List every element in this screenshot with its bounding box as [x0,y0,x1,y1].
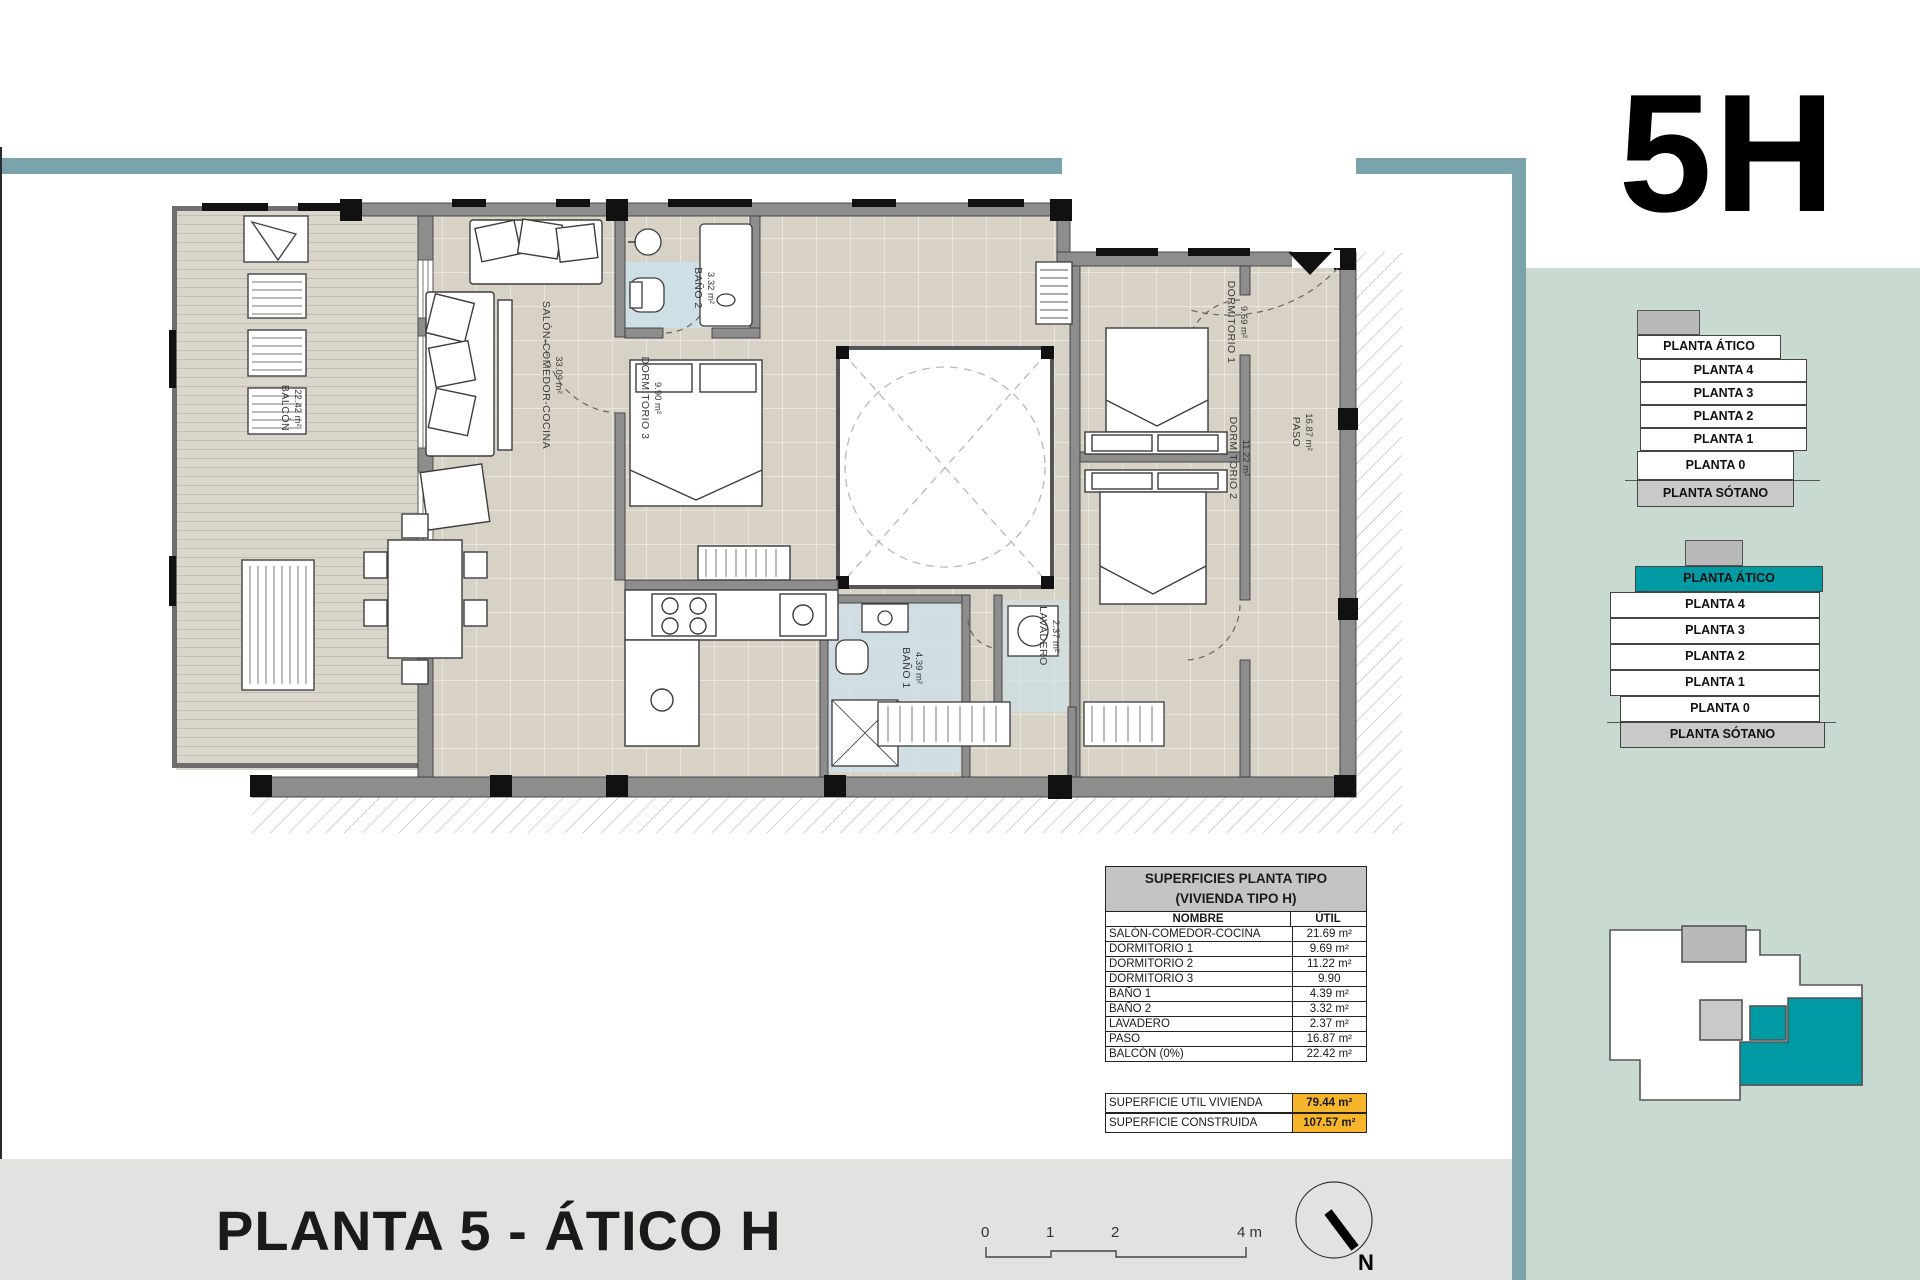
stack-level-planta-sótano: PLANTA SÓTANO [1620,722,1825,748]
stack-level-planta-ático: PLANTA ÁTICO [1637,335,1781,359]
summary-row: SUPERFICIE UTIL VIVIENDA79.44 m² [1105,1093,1367,1113]
stack-level-planta-4: PLANTA 4 [1640,359,1807,382]
table-row: LAVADERO2.37 m² [1105,1017,1367,1032]
summary-row: SUPERFICIE CONSTRUIDA107.57 m² [1105,1113,1367,1133]
floor-plan: SALÓN-COMEDOR-COCINA33.09 m²BAÑO 23.32 m… [0,0,1512,1280]
stack-level-planta-3: PLANTA 3 [1640,382,1807,405]
hatch-bottom [252,797,1402,833]
room-label: BAÑO 14.39 m² [900,647,924,689]
page-title: PLANTA 5 - ÁTICO H [216,1198,782,1263]
hatch-right [1356,252,1402,797]
scale-label: 4 m [1237,1224,1262,1241]
stack-level-planta-1: PLANTA 1 [1640,428,1807,451]
table-row: DORMITORIO 211.22 m² [1105,957,1367,972]
service-shaft [1036,262,1072,324]
stack-level-planta-sótano: PLANTA SÓTANO [1637,480,1794,507]
balcony [169,203,418,770]
surfaces-table-header: NOMBRE ÚTIL [1105,912,1367,927]
surfaces-summary: SUPERFICIE UTIL VIVIENDA79.44 m²SUPERFIC… [1105,1093,1367,1133]
stack-level-planta-4: PLANTA 4 [1610,592,1820,618]
table-row: BAÑO 23.32 m² [1105,1002,1367,1017]
stack-level-planta-3: PLANTA 3 [1610,618,1820,644]
stack-roof-block [1685,540,1743,566]
table-row: DORMITORIO 39.90 [1105,972,1367,987]
scale-bar [985,1244,1249,1260]
bedroom1 [1085,328,1227,454]
table-row: PASO16.87 m² [1105,1032,1367,1047]
table-row: BALCÓN (0%)22.42 m² [1105,1047,1367,1062]
room-label: BAÑO 23.32 m² [692,267,716,309]
table-row: BAÑO 14.39 m² [1105,987,1367,1002]
stack-level-planta-1: PLANTA 1 [1610,670,1820,696]
surfaces-table-title: SUPERFICIES PLANTA TIPO (VIVIENDA TIPO H… [1105,866,1367,912]
stair-core [836,346,1054,589]
stack-level-planta-2: PLANTA 2 [1640,405,1807,428]
stack-level-planta-0: PLANTA 0 [1637,451,1794,480]
bedroom2 [1085,470,1227,604]
stack-level-planta-2: PLANTA 2 [1610,644,1820,670]
stack-level-planta-0: PLANTA 0 [1620,696,1820,722]
scale-label: 1 [1046,1224,1054,1241]
north-arrow: N [1278,1176,1398,1280]
table-row: DORMITORIO 19.69 m² [1105,942,1367,957]
scale-label: 2 [1111,1224,1119,1241]
right-accent-strip [1512,158,1526,1280]
room-label: PASO16.87 m² [1290,413,1314,451]
room-label: BALCÓN22.42 m² [279,385,303,431]
north-label: N [1358,1250,1374,1275]
scale-label: 0 [981,1224,989,1241]
stack-roof-block [1637,310,1700,335]
table-row: SALÓN-COMEDOR-COCINA21.69 m² [1105,927,1367,942]
stack-level-planta-ático: PLANTA ÁTICO [1635,566,1823,592]
surfaces-table: SUPERFICIES PLANTA TIPO (VIVIENDA TIPO H… [1105,866,1367,1062]
